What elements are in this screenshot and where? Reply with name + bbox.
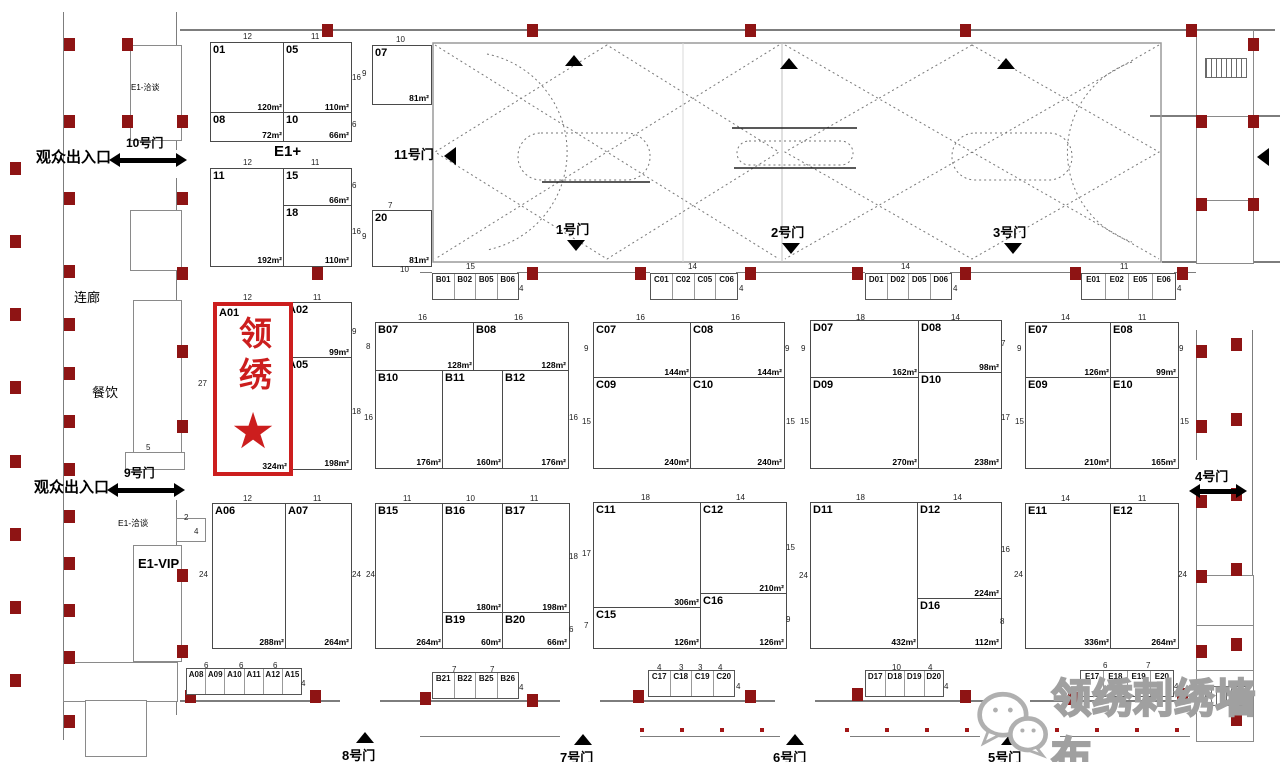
dimension-label: 16 (731, 314, 740, 322)
column-marker (852, 267, 863, 280)
booth-strip: D01D02D05D06 (865, 273, 952, 300)
booth-A06: A06288m² (212, 503, 287, 649)
dimension-label: 9 (1179, 345, 1183, 353)
strip-booth-label: D17 (866, 671, 886, 696)
gate-9-label: 9号门 (124, 464, 155, 481)
dimension-label: 12 (243, 33, 252, 41)
dimension-label: 16 (1001, 546, 1010, 554)
strip-booth-label: E06 (1153, 274, 1176, 299)
strip-booth-label: D18 (886, 671, 906, 696)
strip-booth-label: C17 (649, 671, 671, 696)
booth-area-label: 60m² (481, 637, 501, 647)
booth-id-label: B07 (378, 324, 398, 336)
dimension-label: 7 (490, 666, 494, 674)
booth-D12: D12224m² (917, 502, 1002, 600)
booth-area-label: 165m² (1151, 457, 1176, 467)
booth-strip: B01B02B05B06 (432, 273, 519, 300)
column-marker (10, 308, 21, 321)
booth-id-label: 08 (213, 114, 225, 126)
dimension-label: 16 (636, 314, 645, 322)
dimension-label: 6 (352, 182, 356, 190)
dining-label: 餐饮 (92, 382, 118, 401)
dimension-label: 4 (194, 528, 198, 536)
column-marker (1231, 563, 1242, 576)
column-marker (64, 715, 75, 728)
corridor-label: 连廊 (74, 287, 100, 306)
booth-10: 1066m² (283, 112, 352, 142)
gate-11-label: 11号门 (394, 144, 434, 163)
dimension-label: 9 (786, 616, 790, 624)
booth-area-label: 126m² (759, 637, 784, 647)
dimension-label: 6 (569, 626, 573, 634)
booth-area-label: 238m² (974, 457, 999, 467)
booth-area-label: 99m² (329, 347, 349, 357)
dimension-label: 4 (739, 285, 743, 293)
strip-booth-label: B22 (455, 673, 477, 698)
column-marker (1070, 267, 1081, 280)
booth-id-label: C15 (596, 609, 616, 621)
column-marker (64, 557, 75, 570)
dimension-label: 27 (198, 380, 207, 388)
booth-area-label: 72m² (262, 130, 282, 140)
wechat-icon (975, 687, 1051, 761)
column-dot (680, 728, 684, 732)
dimension-label: 16 (418, 314, 427, 322)
strip-booth-label: C19 (692, 671, 714, 696)
booth-id-label: D12 (920, 504, 940, 516)
dimension-label: 15 (786, 544, 795, 552)
column-marker (1196, 420, 1207, 433)
column-marker (527, 267, 538, 280)
booth-area-label: 336m² (1084, 637, 1109, 647)
booth-id-label: C09 (596, 379, 616, 391)
booth-08: 0872m² (210, 112, 285, 142)
dimension-label: 12 (243, 159, 252, 167)
booth-A05: A05198m² (285, 357, 352, 470)
column-marker (1196, 115, 1207, 128)
dimension-label: 9 (1017, 345, 1021, 353)
booth-id-label: B19 (445, 614, 465, 626)
column-dot (965, 728, 969, 732)
booth-id-label: 15 (286, 170, 298, 182)
booth-id-label: D11 (813, 504, 833, 516)
booth-area-label: 264m² (1151, 637, 1176, 647)
booth-D11: D11432m² (810, 502, 919, 649)
booth-id-label: C16 (703, 595, 723, 607)
column-marker (10, 601, 21, 614)
dimension-label: 15 (466, 263, 475, 271)
watermark-text: 领绣刺绣墙布 (1051, 666, 1280, 762)
booth-area-label: 144m² (757, 367, 782, 377)
booth-01: 01120m² (210, 42, 285, 114)
dimension-label: 11 (313, 495, 321, 503)
dimension-label: 14 (736, 494, 745, 502)
column-dot (845, 728, 849, 732)
column-marker (1231, 638, 1242, 651)
booth-area-label: 264m² (416, 637, 441, 647)
booth-area-label: 180m² (476, 602, 501, 612)
booth-D07: D07162m² (810, 320, 920, 379)
gate-6-label: 6号门 (773, 747, 806, 762)
strip-booth-label: D06 (931, 274, 952, 299)
column-marker (745, 267, 756, 280)
booth-strip: B21B22B25B26 (432, 672, 519, 699)
column-dot (640, 728, 644, 732)
booth-area-label: 224m² (974, 588, 999, 598)
booth-id-label: E09 (1028, 379, 1048, 391)
column-marker (177, 115, 188, 128)
dimension-label: 4 (928, 664, 932, 672)
dimension-label: 24 (199, 571, 208, 579)
booth-E10: E10165m² (1110, 377, 1179, 469)
booth-id-label: A07 (288, 505, 308, 517)
room-outline (176, 518, 206, 542)
strip-booth-label: C06 (716, 274, 737, 299)
booth-D16: D16112m² (917, 598, 1002, 649)
dimension-label: 16 (352, 74, 361, 82)
dimension-label: 9 (785, 345, 789, 353)
booth-id-label: 07 (375, 47, 387, 59)
booth-area-label: 192m² (257, 255, 282, 265)
entrance-arrow-icon-mid (118, 488, 174, 493)
booth-C10: C10240m² (690, 377, 785, 469)
booth-area-label: 110m² (325, 102, 349, 112)
room-outline (133, 300, 182, 459)
booth-B12: B12176m² (502, 370, 569, 469)
dimension-label: 15 (1015, 418, 1024, 426)
booth-strip: A08A09A10A11A12A15 (186, 668, 302, 695)
dimension-label: 11 (1120, 263, 1128, 271)
dimension-label: 11 (530, 495, 538, 503)
column-marker (852, 688, 863, 701)
gate-3-triangle-icon (1004, 243, 1022, 254)
strip-booth-label: A15 (283, 669, 301, 694)
booth-id-label: A06 (215, 505, 235, 517)
room-outline (130, 210, 182, 271)
booth-C12: C12210m² (700, 502, 787, 595)
dimension-label: 4 (736, 683, 740, 691)
booth-id-label: 11 (213, 170, 225, 182)
dimension-label: 12 (243, 294, 252, 302)
strip-booth-label: B05 (476, 274, 498, 299)
booth-id-label: B16 (445, 505, 465, 517)
column-marker (64, 510, 75, 523)
column-marker (312, 267, 323, 280)
strip-booth-label: B25 (476, 673, 498, 698)
dimension-label: 18 (856, 314, 865, 322)
booth-D10: D10238m² (918, 372, 1002, 469)
booth-C11: C11306m² (593, 502, 702, 609)
booth-id-label: C11 (596, 504, 616, 516)
dimension-label: 4 (519, 285, 523, 293)
column-marker (527, 24, 538, 37)
booth-area-label: 81m² (409, 93, 429, 103)
booth-20: 2081m² (372, 210, 432, 267)
gate-8-triangle-icon (356, 732, 374, 743)
strip-booth-label: B06 (498, 274, 519, 299)
dimension-label: 6 (273, 662, 277, 670)
gate-arrow-up-icon-3 (997, 58, 1015, 69)
column-marker (64, 265, 75, 278)
booth-id-label: C12 (703, 504, 723, 516)
e1-plus-label: E1+ (274, 143, 301, 160)
dimension-label: 11 (403, 495, 411, 503)
booth-C08: C08144m² (690, 322, 785, 379)
booth-area-label: 160m² (476, 457, 501, 467)
strip-booth-label: D05 (909, 274, 931, 299)
dimension-label: 14 (901, 263, 910, 271)
strip-booth-label: A12 (264, 669, 283, 694)
column-marker (64, 38, 75, 51)
dimension-label: 14 (1061, 314, 1070, 322)
booth-B11: B11160m² (442, 370, 504, 469)
column-marker (1248, 198, 1259, 211)
dimension-label: 18 (569, 553, 578, 561)
wall-segment (420, 272, 432, 273)
dimension-label: 24 (799, 572, 808, 580)
dimension-label: 16 (364, 414, 373, 422)
booth-D08: D0898m² (918, 320, 1002, 374)
wall-segment (420, 736, 560, 737)
booth-id-label: 20 (375, 212, 387, 224)
star-icon: ★ (231, 406, 276, 456)
booth-id-label: B15 (378, 505, 398, 517)
booth-id-label: C10 (693, 379, 713, 391)
gate-1-triangle-icon (567, 240, 585, 251)
dimension-label: 11 (311, 33, 319, 41)
booth-area-label: 432m² (891, 637, 916, 647)
booth-area-label: 198m² (324, 458, 349, 468)
column-marker (527, 694, 538, 707)
wall-segment (180, 29, 1275, 31)
dimension-label: 7 (452, 666, 456, 674)
dimension-label: 11 (311, 159, 319, 167)
booth-id-label: C08 (693, 324, 713, 336)
strip-booth-label: B26 (498, 673, 519, 698)
column-marker (10, 528, 21, 541)
gate-arrow-up-icon-2 (780, 58, 798, 69)
booth-id-label: D08 (921, 322, 941, 334)
booth-area-label: 210m² (759, 583, 784, 593)
dimension-label: 14 (951, 314, 960, 322)
booth-A01: A01324m²领绣★ (213, 302, 293, 476)
gate-7-triangle-icon (574, 734, 592, 745)
booth-area-label: 198m² (542, 602, 567, 612)
column-marker (64, 604, 75, 617)
booth-area-label: 162m² (892, 367, 917, 377)
booth-id-label: B20 (505, 614, 525, 626)
column-marker (1231, 338, 1242, 351)
booth-C16: C16126m² (700, 593, 787, 649)
strip-booth-label: D02 (888, 274, 910, 299)
column-marker (635, 267, 646, 280)
strip-booth-label: A11 (245, 669, 264, 694)
booth-18: 18110m² (283, 205, 352, 267)
column-marker (420, 692, 431, 705)
booth-E12: E12264m² (1110, 503, 1179, 649)
booth-id-label: D09 (813, 379, 833, 391)
booth-area-label: 81m² (409, 255, 429, 265)
strip-booth-label: A08 (187, 669, 206, 694)
dimension-label: 10 (892, 664, 901, 672)
booth-area-label: 264m² (324, 637, 349, 647)
booth-E07: E07126m² (1025, 322, 1112, 379)
dimension-label: 16 (514, 314, 523, 322)
booth-strip: E01E02E05E06 (1081, 273, 1176, 300)
dimension-label: 11 (1138, 314, 1146, 322)
dimension-label: 3 (679, 664, 683, 672)
column-marker (10, 162, 21, 175)
booth-id-label: E08 (1113, 324, 1133, 336)
dimension-label: 8 (1000, 618, 1004, 626)
column-marker (322, 24, 333, 37)
strip-booth-label: C18 (671, 671, 693, 696)
hall-arrow-left-icon (444, 147, 456, 165)
gate-arrow-up-icon-1 (565, 55, 583, 66)
column-marker (1196, 570, 1207, 583)
booth-id-label: 01 (213, 44, 225, 56)
column-dot (885, 728, 889, 732)
booth-id-label: 05 (286, 44, 298, 56)
column-marker (1231, 413, 1242, 426)
dimension-label: 8 (366, 343, 370, 351)
dimension-label: 9 (584, 345, 588, 353)
column-marker (960, 267, 971, 280)
dimension-label: 15 (800, 418, 809, 426)
column-marker (177, 345, 188, 358)
entrance-label-top: 观众出入口 (36, 146, 111, 167)
booth-strip: D17D18D19D20 (865, 670, 944, 697)
booth-B07: B07128m² (375, 322, 475, 372)
e1-talk-top-label: E1-洽谈 (131, 82, 159, 93)
booth-C09: C09240m² (593, 377, 692, 469)
column-marker (177, 645, 188, 658)
strip-booth-label: B01 (433, 274, 455, 299)
highlight-booth-name: 领绣 (237, 316, 270, 398)
booth-A02: A0299m² (285, 302, 352, 359)
column-marker (64, 367, 75, 380)
booth-id-label: B17 (505, 505, 525, 517)
booth-area-label: 126m² (674, 637, 699, 647)
gate-6-triangle-icon (786, 734, 804, 745)
booth-05: 05110m² (283, 42, 352, 114)
dimension-label: 17 (1001, 414, 1010, 422)
column-marker (64, 318, 75, 331)
dimension-label: 7 (584, 622, 588, 630)
dimension-label: 4 (301, 680, 305, 688)
strip-booth-label: A09 (206, 669, 225, 694)
booth-area-label: 240m² (664, 457, 689, 467)
booth-id-label: 10 (286, 114, 298, 126)
booth-id-label: B08 (476, 324, 496, 336)
booth-area-label: 288m² (259, 637, 284, 647)
gate-1-label: 1号门 (556, 219, 589, 238)
column-marker (745, 24, 756, 37)
booth-area-label: 144m² (664, 367, 689, 377)
booth-area-label: 270m² (892, 457, 917, 467)
dimension-label: 6 (239, 662, 243, 670)
booth-id-label: E11 (1028, 505, 1047, 517)
dimension-label: 9 (362, 70, 366, 78)
wall-segment (850, 736, 980, 737)
stairs (1205, 58, 1247, 78)
booth-area-label: 128m² (447, 360, 472, 370)
booth-B15: B15264m² (375, 503, 444, 649)
column-marker (64, 651, 75, 664)
watermark: 领绣刺绣墙布 (975, 666, 1280, 762)
booth-C15: C15126m² (593, 607, 702, 649)
gate-4-arrow-icon (1200, 489, 1236, 494)
gate-7-label: 7号门 (560, 747, 593, 762)
entrance-label-mid: 观众出入口 (34, 476, 109, 497)
strip-booth-label: B21 (433, 673, 455, 698)
column-marker (1248, 115, 1259, 128)
dimension-label: 12 (243, 495, 252, 503)
dimension-label: 18 (352, 408, 361, 416)
gate-10-label: 10号门 (126, 134, 163, 151)
dimension-label: 15 (786, 418, 795, 426)
wall-segment (640, 736, 780, 737)
strip-booth-label: D19 (905, 671, 925, 696)
dimension-label: 4 (953, 285, 957, 293)
booth-area-label: 176m² (416, 457, 441, 467)
booth-B16: B16180m² (442, 503, 504, 614)
booth-area-label: 98m² (979, 362, 999, 372)
booth-15: 1566m² (283, 168, 352, 207)
column-marker (960, 690, 971, 703)
column-marker (64, 415, 75, 428)
booth-A07: A07264m² (285, 503, 352, 649)
dimension-label: 9 (362, 233, 366, 241)
booth-area-label: 210m² (1084, 457, 1109, 467)
dimension-label: 15 (582, 418, 591, 426)
dimension-label: 24 (1178, 571, 1187, 579)
booth-id-label: D07 (813, 322, 833, 334)
booth-area-label: 120m² (257, 102, 282, 112)
booth-11: 11192m² (210, 168, 285, 267)
booth-id-label: C07 (596, 324, 616, 336)
column-dot (720, 728, 724, 732)
dimension-label: 18 (641, 494, 650, 502)
gate-2-label: 2号门 (771, 222, 804, 241)
room-outline (1196, 116, 1254, 202)
strip-booth-label: E05 (1129, 274, 1153, 299)
entrance-arrow-icon-top (120, 158, 176, 163)
gate-3-label: 3号门 (993, 222, 1026, 241)
dimension-label: 24 (1014, 571, 1023, 579)
column-marker (1248, 38, 1259, 51)
gate-4-label: 4号门 (1195, 466, 1228, 485)
dimension-label: 14 (688, 263, 697, 271)
booth-E08: E0899m² (1110, 322, 1179, 379)
strip-booth-label: A10 (225, 669, 244, 694)
dimension-label: 24 (366, 571, 375, 579)
booth-area-label: 112m² (975, 637, 999, 647)
e1-talk-label: E1-洽谈 (118, 517, 148, 529)
exhibition-floor-plan: 观众出入口 10号门 观众出入口 9号门 连廊 餐饮 E1-洽谈 E1-洽谈 E… (0, 0, 1280, 762)
column-marker (64, 463, 75, 476)
dimension-label: 4 (944, 683, 948, 691)
dimension-label: 10 (466, 495, 475, 503)
dimension-label: 6 (204, 662, 208, 670)
booth-area-label: 66m² (547, 637, 567, 647)
strip-booth-label: C02 (673, 274, 695, 299)
column-marker (177, 420, 188, 433)
dimension-label: 24 (352, 571, 361, 579)
dimension-label: 16 (569, 414, 578, 422)
booth-id-label: 18 (286, 207, 298, 219)
booth-area-label: 176m² (541, 457, 566, 467)
